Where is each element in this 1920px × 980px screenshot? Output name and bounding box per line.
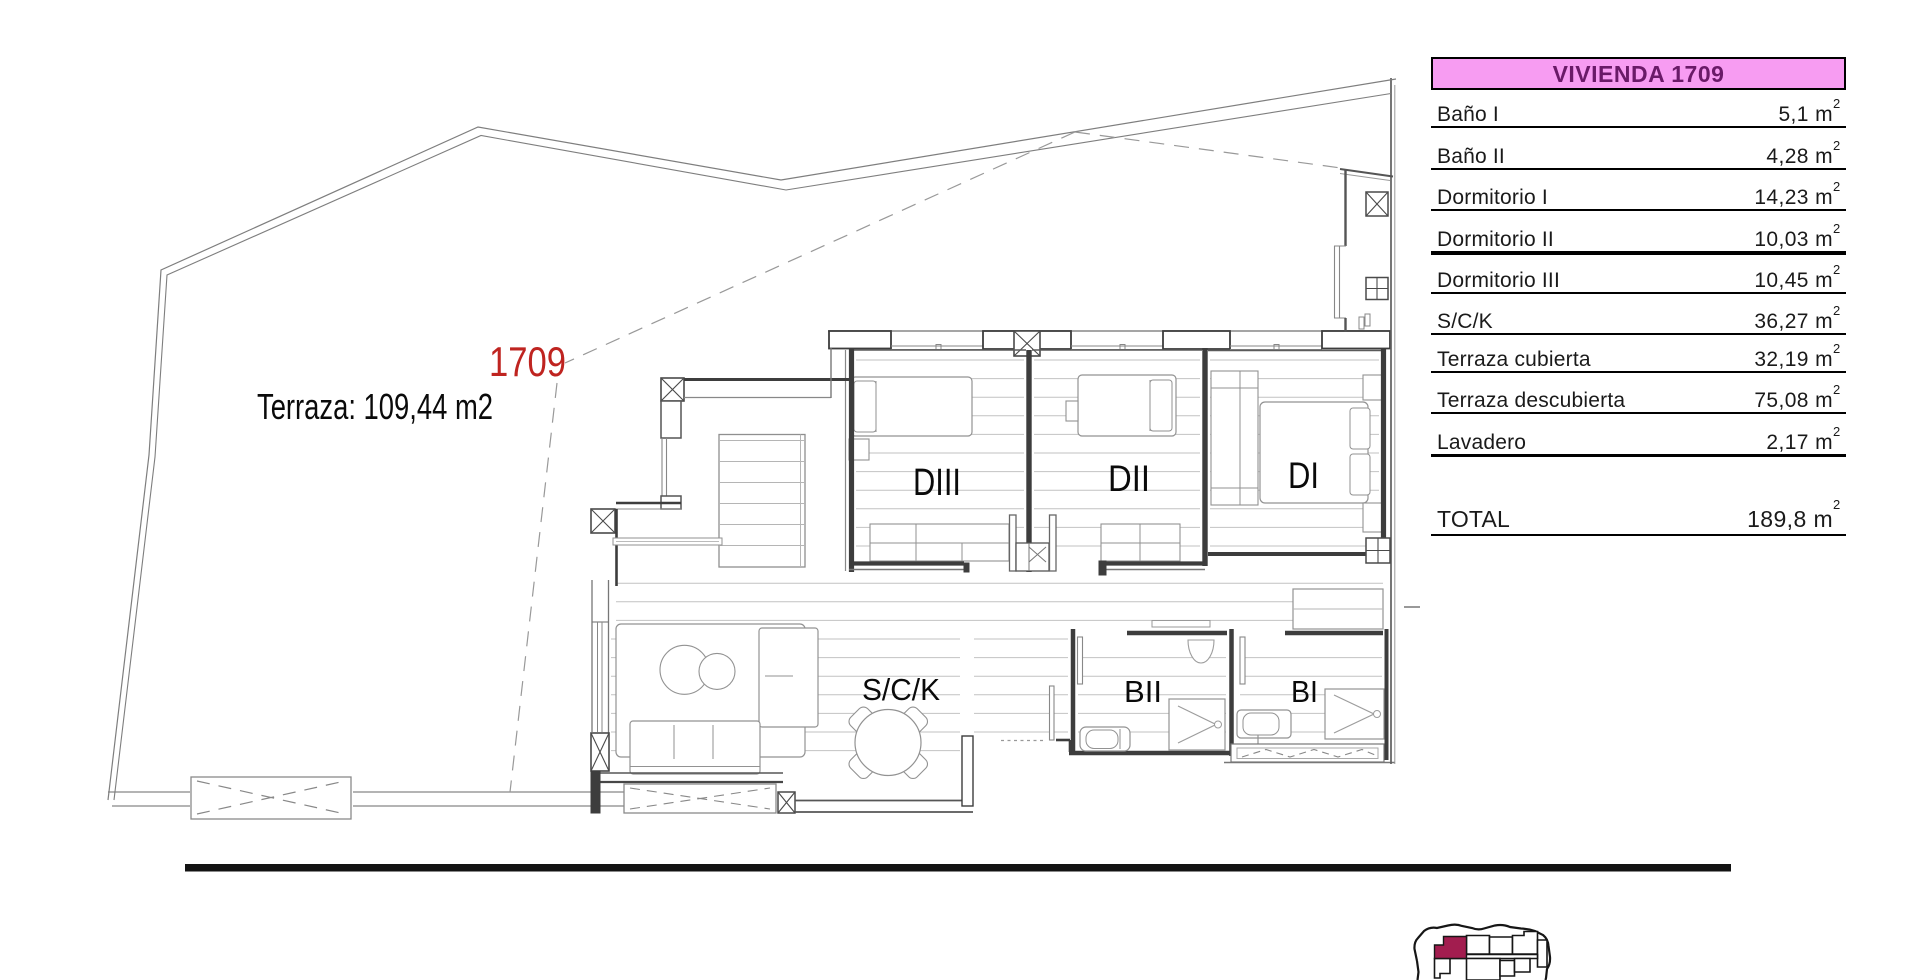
svg-text:DI: DI [1288, 455, 1319, 496]
svg-text:BII: BII [1124, 674, 1162, 709]
svg-text:1709: 1709 [489, 338, 566, 385]
svg-text:DIII: DIII [913, 462, 961, 504]
svg-text:DII: DII [1108, 458, 1150, 499]
svg-text:Terraza: 109,44 m2: Terraza: 109,44 m2 [257, 386, 493, 427]
svg-text:S/C/K: S/C/K [862, 672, 940, 707]
svg-text:BI: BI [1291, 674, 1318, 709]
